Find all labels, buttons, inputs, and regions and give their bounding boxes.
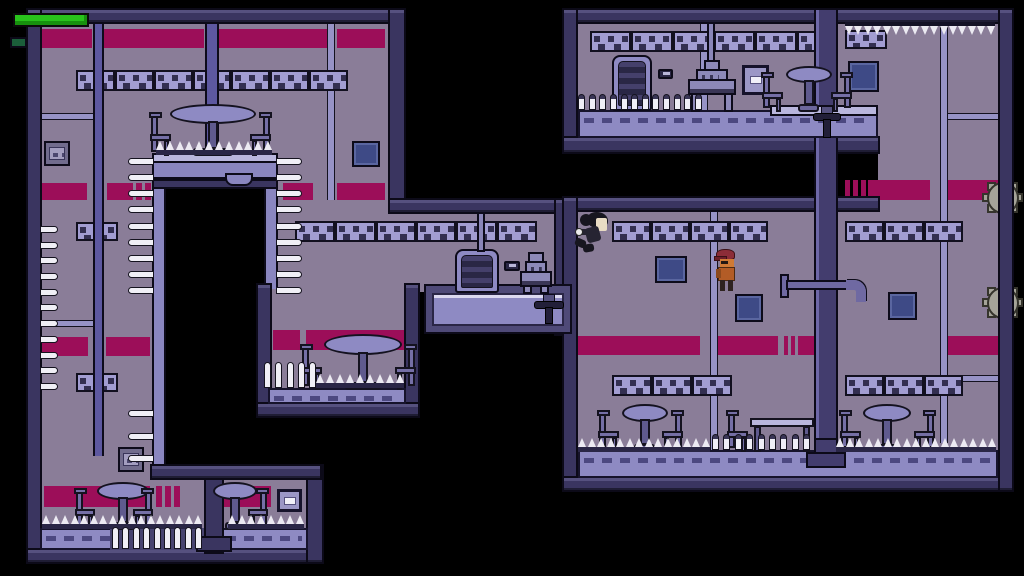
spike	[175, 515, 183, 524]
spike	[968, 26, 976, 35]
wall-spike	[128, 239, 154, 246]
spike	[922, 438, 930, 447]
spike	[941, 438, 949, 447]
spike	[346, 374, 354, 383]
console-screen	[741, 300, 757, 316]
spike	[979, 438, 987, 447]
grate-segment	[335, 221, 375, 242]
wall-spikes	[128, 410, 154, 462]
platform-body	[152, 161, 278, 179]
wall-spike	[276, 255, 302, 262]
grate-segment	[612, 221, 651, 242]
wall-spike	[40, 320, 58, 327]
wall-fixture	[658, 69, 673, 79]
wall-spike	[40, 273, 58, 280]
spike	[702, 438, 710, 447]
frame-picture	[750, 76, 762, 84]
spike-row	[845, 22, 995, 35]
enemy-leg	[720, 280, 725, 291]
valve-stem	[545, 307, 553, 324]
chair-headrest	[256, 488, 269, 494]
wall-spike	[40, 257, 58, 264]
panel-seam	[40, 113, 93, 120]
accent-stripe	[712, 336, 778, 355]
spike	[109, 515, 117, 524]
wall-slab	[150, 464, 322, 480]
player-fist	[575, 228, 583, 236]
spike-pins	[264, 362, 316, 388]
chair-headrest	[597, 410, 610, 416]
spike	[185, 515, 193, 524]
spike	[215, 141, 223, 150]
wall-spike	[276, 239, 302, 246]
spike-row	[578, 438, 710, 452]
spike	[147, 515, 155, 524]
spike	[90, 515, 98, 524]
health-bar-fill	[15, 15, 87, 25]
chair-headrest	[923, 410, 936, 416]
spike	[254, 141, 262, 150]
player-character	[574, 212, 614, 254]
wall-slab	[26, 548, 324, 564]
spike	[366, 374, 374, 383]
wall-spike	[40, 304, 58, 311]
accent-stripe	[37, 183, 87, 200]
spike-pin	[631, 94, 638, 110]
locker-door	[455, 249, 499, 293]
panel-seam	[327, 22, 335, 200]
chair	[761, 72, 784, 112]
accent-stripe	[156, 486, 162, 507]
spike-pin	[695, 94, 702, 110]
accent-stripe	[784, 336, 788, 355]
spike	[244, 141, 252, 150]
wall-spike	[40, 242, 58, 249]
spike	[195, 141, 203, 150]
valve-handle	[533, 294, 565, 324]
spike	[912, 438, 920, 447]
locker-slats	[461, 255, 493, 288]
spike-pin	[769, 434, 776, 450]
wall-spike	[128, 223, 154, 230]
spike-pins	[578, 94, 702, 110]
spike	[911, 26, 919, 35]
spike	[228, 515, 236, 524]
spike-pin	[674, 94, 681, 110]
wall-spike	[40, 226, 58, 233]
spike-pin	[133, 527, 140, 549]
spike	[166, 141, 174, 150]
wall-spike	[40, 367, 58, 374]
spike	[326, 374, 334, 383]
hud-secondary-indicator	[10, 37, 27, 48]
accent-stripe	[40, 29, 92, 48]
wall-pipe	[780, 272, 868, 302]
console-screen	[894, 298, 911, 314]
grate-segment	[651, 221, 690, 242]
spike	[949, 26, 957, 35]
spike-pin	[663, 94, 670, 110]
spike-pin	[309, 362, 316, 388]
spike	[607, 438, 615, 447]
vent-grate-band	[295, 221, 537, 242]
spike	[296, 515, 304, 524]
spike-pin	[746, 434, 753, 450]
spike	[873, 26, 881, 35]
grate-segment	[845, 375, 884, 396]
spike	[892, 26, 900, 35]
grate-segment	[924, 375, 963, 396]
spike	[61, 515, 69, 524]
grate-segment	[309, 70, 348, 91]
grate-segment	[154, 70, 193, 91]
spike	[588, 438, 596, 447]
spike	[865, 438, 873, 447]
table-foot	[225, 173, 253, 186]
grate-segment	[845, 221, 884, 242]
spike	[336, 374, 344, 383]
spike	[884, 438, 892, 447]
panel-seam	[710, 212, 718, 452]
spike	[931, 438, 939, 447]
floor-dashes	[584, 458, 992, 463]
accent-stripe	[337, 183, 385, 200]
wall-console	[352, 141, 380, 167]
machine-leg	[724, 93, 733, 112]
wall-console	[735, 294, 763, 322]
spike	[664, 438, 672, 447]
wall-spike	[128, 255, 154, 262]
grate-segment	[652, 375, 692, 396]
spike	[960, 438, 968, 447]
wall-spike	[128, 433, 154, 440]
chair-headrest	[259, 112, 272, 118]
grate-segment	[612, 375, 652, 396]
grate-segment	[497, 221, 537, 242]
wall-spike	[128, 174, 154, 181]
spike	[969, 438, 977, 447]
fixture-light	[663, 72, 670, 75]
spike	[683, 438, 691, 447]
spike-pins	[112, 527, 202, 549]
ceiling-pole	[707, 22, 715, 62]
spike	[52, 515, 60, 524]
spike	[235, 141, 243, 150]
wall-monitor	[44, 141, 70, 166]
spike	[845, 26, 853, 35]
accent-stripe	[791, 336, 795, 355]
enemy-leg	[728, 280, 733, 291]
spike	[257, 515, 265, 524]
spike	[940, 26, 948, 35]
wall-spike	[40, 336, 58, 343]
hanging-platform	[152, 153, 278, 189]
support-pillar	[93, 22, 104, 456]
spike	[194, 515, 202, 524]
picture-frame	[277, 489, 302, 512]
spike	[225, 141, 233, 150]
spike	[930, 26, 938, 35]
chair-headrest	[74, 488, 87, 494]
wall-spike	[276, 190, 302, 197]
wall-spikes	[40, 226, 58, 390]
chair-headrest	[761, 72, 774, 78]
vent-grate-band	[845, 375, 963, 396]
wall-spike	[128, 287, 154, 294]
table-stem	[804, 80, 814, 105]
wall-spike	[128, 410, 154, 417]
machine-leg	[523, 285, 532, 294]
spike	[692, 438, 700, 447]
spike-pin	[174, 527, 181, 549]
spike-pin	[112, 527, 119, 549]
spike	[386, 374, 394, 383]
grate-segment	[270, 70, 309, 91]
accent-stripe	[219, 29, 329, 48]
spike	[893, 438, 901, 447]
pipe-bar	[786, 280, 848, 290]
floor-dashes	[274, 396, 400, 401]
wall-spike	[40, 383, 58, 390]
grate-segment	[231, 70, 270, 91]
spike	[80, 515, 88, 524]
wall-spike	[40, 289, 58, 296]
spike	[855, 438, 863, 447]
spike	[205, 141, 213, 150]
spike-pin	[143, 527, 150, 549]
valve-stem	[823, 119, 831, 138]
wall-spike	[276, 174, 302, 181]
console-screen	[854, 67, 873, 86]
spike-pin	[610, 94, 617, 110]
spike	[578, 438, 586, 447]
wall-spike	[276, 206, 302, 213]
spike	[156, 515, 164, 524]
spike	[376, 374, 384, 383]
spike	[673, 438, 681, 447]
spike-row	[228, 515, 304, 529]
spike-pin	[642, 94, 649, 110]
spike-pin	[122, 527, 129, 549]
grate-segment	[884, 221, 923, 242]
spike	[616, 438, 624, 447]
floor-slab	[578, 450, 998, 478]
wall-spike	[276, 158, 302, 165]
accent-stripe	[104, 29, 204, 48]
spike	[903, 438, 911, 447]
spike-pin	[287, 362, 294, 388]
pipe-hook	[846, 280, 866, 302]
wall-spike	[276, 287, 302, 294]
spike	[166, 515, 174, 524]
wall-spike	[128, 455, 154, 462]
enemy-character	[714, 249, 741, 291]
fixture-light	[509, 264, 516, 267]
wall-spikes	[128, 158, 154, 294]
spike	[99, 515, 107, 524]
spike-pin	[735, 434, 742, 450]
spike-pin	[589, 94, 596, 110]
spike-pin	[780, 434, 787, 450]
ceiling-pole	[477, 212, 485, 252]
spike	[958, 26, 966, 35]
chair-headrest	[726, 410, 739, 416]
grate-segment	[590, 31, 631, 52]
accent-stripe	[948, 336, 998, 355]
grate-segment	[690, 221, 729, 242]
spike	[921, 26, 929, 35]
accent-stripe	[106, 337, 150, 356]
spike-pin	[164, 527, 171, 549]
spike-row	[316, 374, 404, 388]
spike	[247, 515, 255, 524]
player-leg	[582, 243, 594, 253]
accent-stripe	[174, 486, 180, 507]
spike	[864, 26, 872, 35]
spike-pin	[185, 527, 192, 549]
spike	[977, 26, 985, 35]
spike-pin	[652, 94, 659, 110]
wall-console	[655, 256, 687, 283]
wall-slab	[562, 476, 1014, 492]
spike-pin	[275, 362, 282, 388]
floor-slab	[268, 388, 406, 404]
spike	[238, 515, 246, 524]
grate-segment	[714, 31, 755, 52]
spike	[356, 374, 364, 383]
chair-headrest	[404, 344, 417, 350]
chair-headrest	[840, 72, 853, 78]
spike-pin	[154, 527, 161, 549]
health-bar	[13, 13, 89, 27]
pit-wall	[152, 153, 166, 468]
monitor-screen	[49, 147, 65, 160]
chair-headrest	[149, 112, 162, 118]
chair-headrest	[300, 344, 313, 350]
spike	[267, 515, 275, 524]
accent-stripe	[165, 486, 171, 507]
wall-spike	[128, 158, 154, 165]
spike-pin	[621, 94, 628, 110]
spike-row	[836, 438, 996, 452]
spike	[950, 438, 958, 447]
spike	[118, 515, 126, 524]
platform-underside	[152, 179, 278, 189]
spike-pin	[758, 434, 765, 450]
wall-slab	[998, 8, 1014, 492]
wall-slab	[562, 8, 578, 154]
grate-segment	[631, 31, 672, 52]
spike-pin	[712, 434, 719, 450]
chair-headrest	[671, 410, 684, 416]
spike	[902, 26, 910, 35]
wall-spike	[276, 271, 302, 278]
wall-spike	[40, 352, 58, 359]
spike	[71, 515, 79, 524]
wall-spike	[128, 190, 154, 197]
spike	[42, 515, 50, 524]
console-screen	[661, 262, 681, 277]
wall-spike	[128, 271, 154, 278]
spike-pin	[803, 434, 810, 450]
enemy-eyes	[721, 261, 728, 264]
spike-pin	[599, 94, 606, 110]
vent-grate-band	[612, 375, 732, 396]
chair-headrest	[141, 488, 154, 494]
wall-slab	[256, 402, 420, 418]
enemy-arm	[716, 269, 721, 278]
spike	[176, 141, 184, 150]
column-base	[806, 452, 846, 468]
spike	[654, 438, 662, 447]
spike	[836, 438, 844, 447]
spike	[277, 515, 285, 524]
spike	[597, 438, 605, 447]
grate-segment	[692, 375, 732, 396]
wall-spike	[276, 223, 302, 230]
grate-segment	[416, 221, 456, 242]
wall-spikes	[276, 158, 302, 294]
spike-pin	[578, 94, 585, 110]
spike	[626, 438, 634, 447]
spike-pin	[298, 362, 305, 388]
wall-spike	[128, 206, 154, 213]
grate-segment	[924, 221, 963, 242]
chair-leg	[776, 98, 781, 112]
spike	[396, 374, 404, 383]
grate-segment	[884, 375, 923, 396]
spike	[846, 438, 854, 447]
spike	[874, 438, 882, 447]
panel-seam	[948, 113, 998, 120]
grate-segment	[115, 70, 154, 91]
wall-slab	[388, 8, 406, 214]
pit-shaft	[165, 178, 265, 468]
frame-picture	[284, 497, 296, 505]
spike	[185, 141, 193, 150]
spike-pin	[792, 434, 799, 450]
game-viewport[interactable]	[0, 0, 1024, 576]
accent-stripe	[273, 330, 300, 350]
spike	[988, 438, 996, 447]
spike	[128, 515, 136, 524]
spike	[854, 26, 862, 35]
wall-console	[888, 292, 917, 320]
vent-grate-band	[612, 221, 768, 242]
spike-pin	[264, 362, 271, 388]
grate-segment	[755, 31, 796, 52]
spike-row	[156, 141, 272, 155]
spike	[635, 438, 643, 447]
spike	[316, 374, 324, 383]
console-screen	[358, 147, 374, 161]
spike	[286, 515, 294, 524]
lab-machine	[518, 252, 554, 294]
spike	[156, 141, 164, 150]
accent-stripe	[578, 336, 700, 355]
spike	[987, 26, 995, 35]
spike-pin	[684, 94, 691, 110]
spike-pins	[712, 434, 810, 450]
spike	[264, 141, 272, 150]
spike	[137, 515, 145, 524]
accent-stripe	[337, 29, 385, 48]
spike	[883, 26, 891, 35]
valve-handle	[812, 106, 842, 138]
spike-pin	[723, 434, 730, 450]
spike	[645, 438, 653, 447]
grate-segment	[729, 221, 768, 242]
